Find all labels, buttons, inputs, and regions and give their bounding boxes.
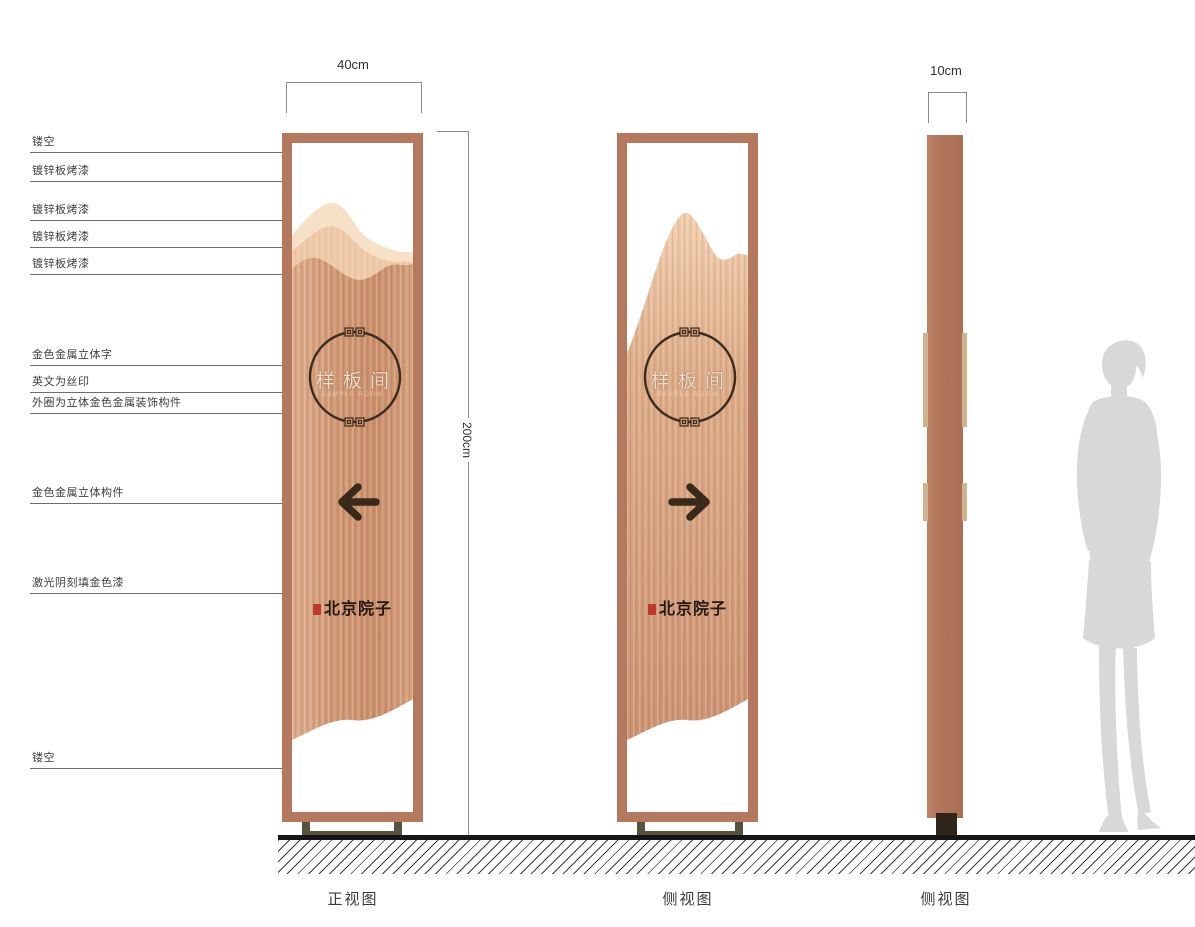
front-panel-graphic	[292, 143, 413, 812]
copper-panel-texture	[627, 213, 748, 740]
annotation-label: 激光阴刻填金色漆	[32, 574, 124, 590]
side-view-tab-left-upper	[923, 333, 928, 427]
red-seal-icon	[648, 604, 656, 615]
back-view-frame: 样板间 SAMPLE ROOM 北京院子	[617, 133, 758, 822]
annotation-label: 镀锌板烤漆	[32, 255, 90, 271]
ground-hatching	[278, 840, 1195, 874]
room-name-english: SAMPLE ROOM	[627, 392, 748, 398]
annotation-label: 镀锌板烤漆	[32, 201, 90, 217]
annotation-galvanized-2: 镀锌板烤漆	[30, 196, 322, 221]
dim-label-200cm: 200cm	[459, 418, 475, 462]
room-name-text: 样板间	[627, 366, 748, 393]
ground-line	[278, 835, 1195, 840]
back-view-panel: 样板间 SAMPLE ROOM 北京院子	[627, 143, 748, 812]
annotation-label: 金色金属立体字	[32, 346, 113, 362]
side-view-tab-left-lower	[923, 483, 928, 521]
dim-line-200cm	[468, 131, 469, 836]
front-view-panel: 样板间 SAMPLE ROOM 北京院子	[292, 143, 413, 812]
annotation-label: 镂空	[32, 749, 55, 765]
annotation-galvanized-1: 镀锌板烤漆	[30, 157, 283, 182]
dim-tick-200cm	[437, 131, 468, 132]
annotation-label: 外圈为立体金色金属装饰构件	[32, 394, 182, 410]
front-view-frame: 样板间 SAMPLE ROOM 北京院子	[282, 133, 423, 822]
left-arrow-icon	[330, 480, 388, 524]
signage-drawing-canvas: 镂空 镀锌板烤漆 镀锌板烤漆 镀锌板烤漆 镀锌板烤漆 金色金属立体字 英文为丝印…	[0, 0, 1195, 927]
side-view-tab-right-upper	[962, 333, 967, 427]
annotation-hollow-bottom: 镂空	[30, 744, 303, 769]
side-view-column	[927, 135, 963, 818]
room-name-english: SAMPLE ROOM	[292, 392, 413, 398]
side-view-tab-right-lower	[962, 483, 967, 521]
brand-logo: 北京院子	[302, 595, 403, 619]
annotation-label: 金色金属立体构件	[32, 484, 124, 500]
annotation-hollow-top: 镂空	[30, 128, 307, 153]
annotation-label: 镀锌板烤漆	[32, 228, 90, 244]
annotation-label: 镀锌板烤漆	[32, 162, 90, 178]
red-seal-icon	[313, 604, 321, 615]
view-label-front: 正视图	[293, 888, 413, 909]
annotation-label: 镂空	[32, 133, 55, 149]
annotation-galvanized-4: 镀锌板烤漆	[30, 250, 288, 275]
view-label-side: 侧视图	[886, 888, 1006, 909]
brand-logo: 北京院子	[637, 595, 738, 619]
back-panel-graphic	[627, 143, 748, 812]
annotation-galvanized-3: 镀锌板烤漆	[30, 223, 288, 248]
dim-bracket-10cm	[928, 92, 967, 123]
annotation-label: 英文为丝印	[32, 373, 90, 389]
dim-bracket-40cm	[286, 82, 422, 113]
brand-logo-text: 北京院子	[659, 599, 727, 618]
room-name-text: 样板间	[292, 366, 413, 393]
annotation-outer-ring: 外圈为立体金色金属装饰构件	[30, 389, 310, 414]
right-arrow-icon	[660, 480, 718, 524]
dim-label-10cm: 10cm	[886, 63, 1006, 78]
view-label-back: 侧视图	[628, 888, 748, 909]
dim-label-40cm: 40cm	[293, 57, 413, 72]
brand-logo-text: 北京院子	[324, 599, 392, 618]
human-scale-silhouette	[1043, 336, 1188, 838]
